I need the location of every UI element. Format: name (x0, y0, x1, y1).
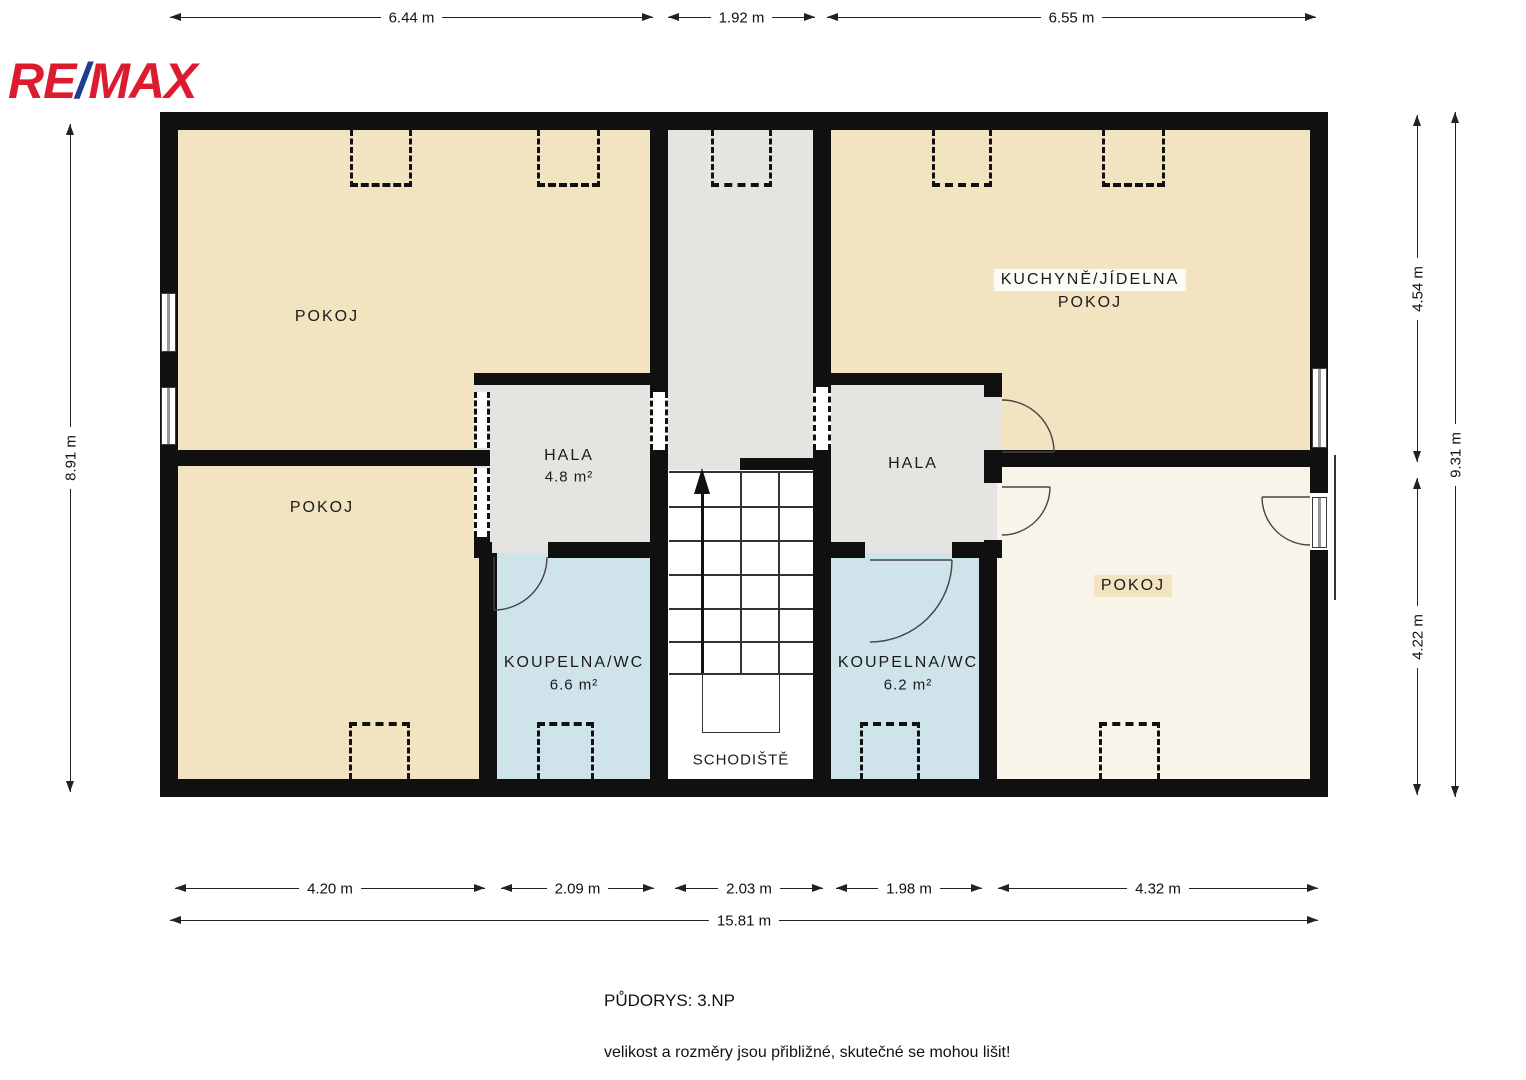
dim-label: 8.91 m (63, 427, 80, 489)
label-kitchen-line2: POKOJ (1058, 294, 1122, 312)
door-koupelna-right (870, 560, 952, 642)
plan-disclaimer: velikost a rozměry jsou přibližné, skute… (604, 1044, 1010, 1062)
dim-top-3: 6.55 m (827, 17, 1316, 18)
logo-re: RE (8, 53, 75, 109)
label-pokoj-top-left: POKOJ (295, 308, 359, 326)
remax-logo: RE/MAX (8, 52, 196, 110)
dim-label: 9.31 m (1448, 424, 1465, 486)
dim-label: 6.44 m (381, 10, 443, 27)
dim-label: 1.98 m (878, 881, 940, 898)
dim-top-2: 1.92 m (668, 17, 815, 18)
dim-label: 4.20 m (299, 881, 361, 898)
label-hala-right: HALA (888, 455, 938, 473)
dim-right-total: 9.31 m (1455, 112, 1456, 797)
dim-label: 1.92 m (711, 10, 773, 27)
dim-label: 6.55 m (1041, 10, 1103, 27)
label-schodiste: SCHODIŠTĚ (693, 752, 790, 769)
label-koupelna-left: KOUPELNA/WC (504, 654, 644, 672)
door-hala-pokoj-br (1002, 487, 1050, 535)
dim-bottom-1: 4.20 m (175, 888, 485, 889)
dim-bottom-4: 1.98 m (836, 888, 982, 889)
dim-left-total: 8.91 m (70, 124, 71, 792)
label-pokoj-bottom-left: POKOJ (290, 499, 354, 517)
door-hala-kitchen (1002, 400, 1054, 452)
label-hala-left: HALA (544, 447, 594, 465)
label-koupelna-right: KOUPELNA/WC (838, 654, 978, 672)
dim-label: 2.09 m (547, 881, 609, 898)
dim-label: 4.32 m (1127, 881, 1189, 898)
dim-label: 15.81 m (709, 913, 779, 930)
logo-max: MAX (88, 53, 196, 109)
logo-slash-icon: / (75, 53, 88, 109)
dim-bottom-3: 2.03 m (675, 888, 823, 889)
dim-right-2: 4.22 m (1417, 478, 1418, 795)
label-koupelna-right-area: 6.2 m² (884, 677, 933, 694)
dim-label: 2.03 m (718, 881, 780, 898)
plan-title: PŮDORYS: 3.NP (604, 991, 735, 1011)
label-pokoj-bottom-right: POKOJ (1094, 575, 1172, 597)
floorplan-page: { "logo": { "re": "RE", "slash": "/", "m… (0, 0, 1526, 1080)
dim-bottom-2: 2.09 m (501, 888, 654, 889)
dim-label: 4.54 m (1410, 258, 1427, 320)
label-koupelna-left-area: 6.6 m² (550, 677, 599, 694)
dim-bottom-total: 15.81 m (170, 920, 1318, 921)
dim-bottom-5: 4.32 m (998, 888, 1318, 889)
label-kitchen-line1: KUCHYNĚ/JÍDELNA (994, 269, 1186, 291)
door-exterior-right (1262, 497, 1310, 545)
door-koupelna-left (494, 557, 547, 610)
label-hala-left-area: 4.8 m² (545, 469, 594, 486)
dim-label: 4.22 m (1410, 606, 1427, 668)
dim-right-1: 4.54 m (1417, 115, 1418, 462)
dim-top-1: 6.44 m (170, 17, 653, 18)
